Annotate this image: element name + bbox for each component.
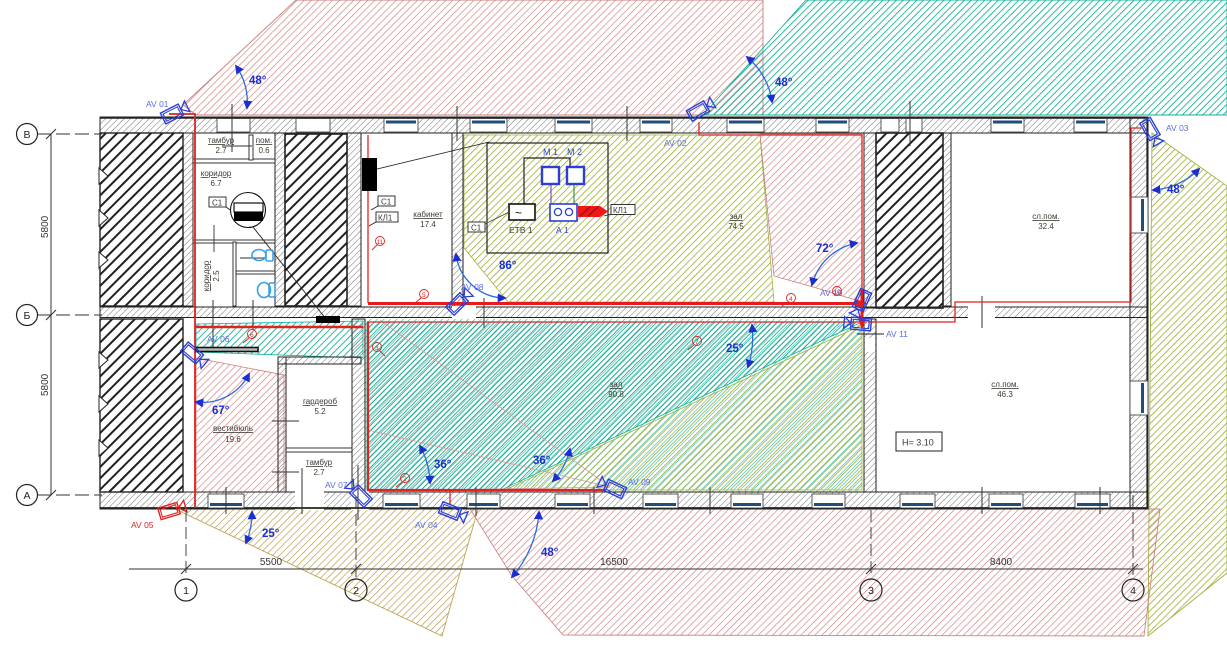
svg-text:AV 04: AV 04 <box>415 520 438 530</box>
svg-text:90.8: 90.8 <box>608 390 624 399</box>
svg-text:48°: 48° <box>541 547 559 559</box>
svg-text:AV 11: AV 11 <box>886 329 908 339</box>
svg-text:AV 06: AV 06 <box>207 334 230 344</box>
svg-text:пом.: пом. <box>256 136 273 145</box>
svg-text:2: 2 <box>353 585 359 597</box>
svg-text:С1: С1 <box>471 224 482 233</box>
svg-text:2.7: 2.7 <box>313 468 325 477</box>
svg-text:3: 3 <box>375 345 379 352</box>
svg-text:H= 3.10: H= 3.10 <box>902 438 934 448</box>
svg-text:М 2: М 2 <box>567 147 582 157</box>
svg-text:4: 4 <box>1130 585 1136 597</box>
svg-text:1: 1 <box>183 585 189 597</box>
svg-text:46.3: 46.3 <box>997 390 1013 399</box>
svg-text:AV 10: AV 10 <box>820 288 843 298</box>
svg-text:AV 03: AV 03 <box>1166 123 1189 133</box>
svg-text:7: 7 <box>695 339 699 346</box>
svg-text:сл.пом.: сл.пом. <box>991 380 1018 389</box>
svg-text:36°: 36° <box>533 455 551 467</box>
svg-text:25°: 25° <box>726 343 744 355</box>
svg-text:коридор: коридор <box>202 260 211 291</box>
svg-text:5500: 5500 <box>260 557 283 568</box>
svg-text:72°: 72° <box>816 243 834 255</box>
svg-text:2: 2 <box>403 476 407 483</box>
svg-text:А 1: А 1 <box>556 225 569 235</box>
svg-text:В: В <box>23 129 30 141</box>
svg-text:5.2: 5.2 <box>314 407 326 416</box>
svg-text:КЛ1: КЛ1 <box>613 206 628 215</box>
svg-text:КЛ1: КЛ1 <box>378 214 393 223</box>
svg-text:48°: 48° <box>775 77 793 89</box>
svg-text:А: А <box>23 490 30 502</box>
svg-text:16500: 16500 <box>600 557 628 568</box>
svg-text:19.6: 19.6 <box>225 435 241 444</box>
svg-text:3: 3 <box>868 585 874 597</box>
svg-text:5800: 5800 <box>40 373 51 396</box>
svg-text:86°: 86° <box>499 260 517 272</box>
svg-text:5800: 5800 <box>40 215 51 238</box>
svg-text:48°: 48° <box>1167 184 1185 196</box>
svg-text:AV 05: AV 05 <box>131 520 154 530</box>
svg-text:74.5: 74.5 <box>728 222 744 231</box>
svg-text:25°: 25° <box>262 528 280 540</box>
svg-text:зал: зал <box>610 380 623 389</box>
svg-text:коридор: коридор <box>201 169 232 178</box>
svg-text:С1: С1 <box>381 198 392 207</box>
svg-text:2.7: 2.7 <box>215 146 227 155</box>
svg-text:6.7: 6.7 <box>210 179 222 188</box>
svg-text:48°: 48° <box>249 75 267 87</box>
svg-text:AV 01: AV 01 <box>146 99 169 109</box>
svg-text:~: ~ <box>515 206 522 220</box>
svg-text:сл.пом.: сл.пом. <box>1032 212 1059 221</box>
svg-text:2.5: 2.5 <box>212 270 221 282</box>
svg-text:AV 02: AV 02 <box>664 138 687 148</box>
svg-text:М 1: М 1 <box>543 147 558 157</box>
svg-text:8400: 8400 <box>990 557 1013 568</box>
svg-text:11: 11 <box>377 239 384 246</box>
svg-text:5: 5 <box>422 292 426 299</box>
svg-text:32.4: 32.4 <box>1038 222 1054 231</box>
svg-text:67°: 67° <box>212 405 230 417</box>
svg-text:гардероб: гардероб <box>303 397 337 406</box>
svg-text:тамбур: тамбур <box>208 136 235 145</box>
svg-text:4: 4 <box>789 296 793 303</box>
svg-text:зал: зал <box>730 212 743 221</box>
svg-text:тамбур: тамбур <box>306 458 333 467</box>
svg-text:ЕТВ 1: ЕТВ 1 <box>509 225 533 235</box>
svg-text:6: 6 <box>250 332 254 339</box>
svg-text:кабинет: кабинет <box>413 210 443 219</box>
svg-text:17.4: 17.4 <box>420 220 436 229</box>
svg-text:С1: С1 <box>212 199 223 208</box>
svg-text:Б: Б <box>24 310 31 322</box>
svg-text:вестибюль: вестибюль <box>213 424 253 433</box>
svg-text:36°: 36° <box>434 459 452 471</box>
svg-text:0.6: 0.6 <box>258 146 270 155</box>
svg-text:AV 09: AV 09 <box>628 477 651 487</box>
svg-text:AV 07: AV 07 <box>325 480 348 490</box>
